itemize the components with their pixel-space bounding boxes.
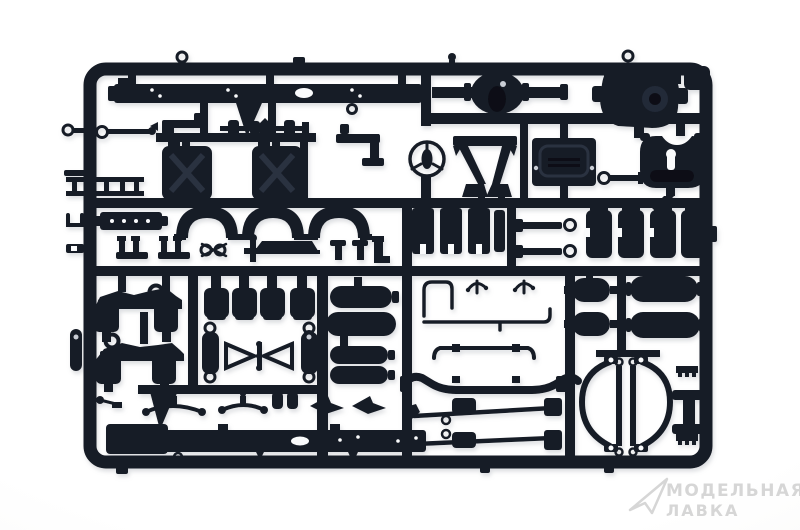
watermark-line1: МОДЕЛЬНАЯ (666, 481, 800, 501)
leaf-spring-slabs (412, 208, 505, 254)
front-axle-beam (400, 376, 578, 392)
brake-lines (424, 281, 550, 330)
t-post-1 (330, 240, 346, 260)
rear-axle-housing-right (592, 68, 688, 138)
tow-bar (97, 122, 159, 138)
wing-bracket-2 (352, 396, 386, 414)
rear-axle-housing-left (432, 71, 568, 120)
step-plate (252, 241, 320, 254)
fork-bracket-1 (116, 236, 148, 259)
frame-corner-blob (684, 66, 710, 90)
engine-mounts (204, 276, 315, 320)
sprue-photo: МОДЕЛЬНАЯ ЛАВКА (0, 0, 800, 530)
crank-handle (599, 172, 644, 184)
paper-plane-icon (630, 479, 667, 513)
bumper-grille (94, 212, 168, 230)
wheel-arch-1 (174, 206, 240, 240)
axle-drum-assembly-1 (94, 276, 182, 342)
wishbone-linkage (226, 341, 292, 371)
watermark-line2: ЛАВКА (666, 501, 739, 520)
air-tank-long-2 (626, 312, 705, 338)
wheel-arch-3 (306, 206, 372, 240)
gun-bracket (372, 236, 390, 263)
h-bracket (672, 390, 712, 434)
cab-mount-frame (453, 136, 517, 197)
hub-hole (500, 81, 506, 87)
frame-side-tab (708, 226, 717, 242)
air-tank-long-1 (626, 276, 703, 302)
wing-bracket-1 (310, 396, 344, 414)
brake-chambers (585, 206, 705, 258)
fender-arch-right (630, 356, 671, 456)
stabilizer-pipe (434, 344, 534, 358)
battery-box (532, 138, 596, 186)
steering-wheel (410, 142, 444, 176)
sprue-illustration: МОДЕЛЬНАЯ ЛАВКА (0, 0, 800, 530)
towing-pin-2 (514, 245, 576, 258)
jerry-can-right (252, 140, 302, 200)
tie-rod-1 (402, 398, 562, 424)
z-bracket (96, 396, 122, 408)
ladder-frame (66, 177, 144, 196)
towing-pin-1 (514, 219, 576, 232)
steering-link-2 (218, 391, 268, 414)
gun-l-bracket (336, 124, 384, 166)
shock-absorber-left (202, 323, 219, 382)
wheel-arch-2 (240, 206, 306, 240)
linkage-glasses (201, 244, 226, 256)
fender-arch-left (582, 356, 623, 456)
watermark: МОДЕЛЬНАЯ ЛАВКА (630, 479, 800, 520)
jerry-can-left (162, 140, 212, 200)
t-post-2 (352, 240, 368, 260)
sprue (63, 51, 717, 474)
